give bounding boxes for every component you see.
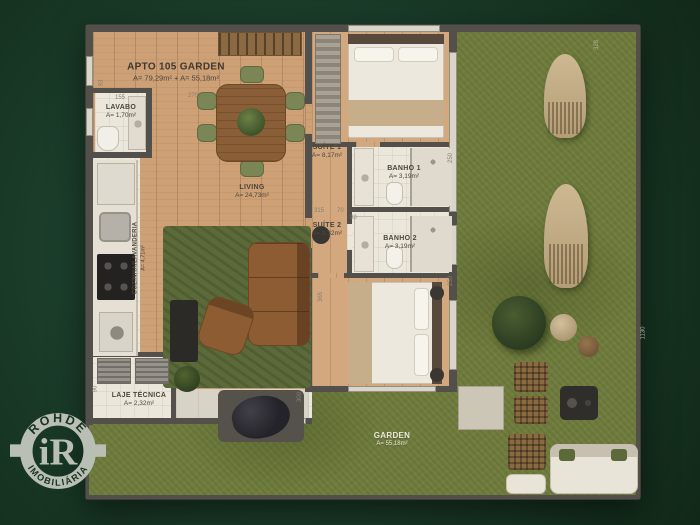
window-suite2-right xyxy=(449,300,457,370)
vanity-banho1 xyxy=(354,148,374,206)
dining-chair xyxy=(285,124,305,142)
room-label-living: LIVING A= 24,73m² xyxy=(235,183,269,201)
garden-pouf xyxy=(550,314,577,341)
dimension-label: 1130 xyxy=(640,327,646,340)
outdoor-coffee-table xyxy=(508,434,546,470)
logo-tab-left xyxy=(10,444,22,456)
kitchen-sink xyxy=(99,212,131,242)
rattan-chair xyxy=(514,362,548,392)
door-gap-suite2-entry xyxy=(318,273,344,278)
room-name: COZINHA/LAVANDERIA xyxy=(133,222,141,295)
door-gap-banho1 xyxy=(356,142,380,147)
dimension-label: 90 xyxy=(350,215,357,221)
hanging-chair-fringe xyxy=(549,244,583,284)
dimension-label: 300 xyxy=(297,392,303,402)
door-gap-banho2 xyxy=(347,224,352,250)
wall-corridor-right xyxy=(347,147,352,278)
dimension-label: 250 xyxy=(448,153,454,163)
room-label-laje: LAJE TÉCNICA A= 2,32m² xyxy=(112,391,167,409)
wall-lavabo-right xyxy=(146,92,152,158)
room-area: A= 9,32m² xyxy=(312,230,342,238)
room-area: A= 1,70m² xyxy=(106,112,136,120)
bed-suite1-pillow xyxy=(354,47,394,62)
room-name: GARDEN xyxy=(374,431,410,441)
lavabo-toilet xyxy=(97,126,119,151)
room-area: A= 3,19m² xyxy=(383,243,417,251)
room-name: LAJE TÉCNICA xyxy=(112,391,167,400)
room-name: BANHO 2 xyxy=(383,234,417,243)
garden-fence-right xyxy=(636,25,640,499)
garden-pouf xyxy=(578,336,599,357)
room-area: A= 3,19m² xyxy=(387,173,421,181)
room-name: SUÍTE 2 xyxy=(312,221,342,230)
dimension-label: 328 xyxy=(594,40,600,50)
room-label-lavabo: LAVABO A= 1,70m² xyxy=(106,103,136,121)
bed-suite1-pillow xyxy=(398,47,438,62)
grill xyxy=(560,386,598,420)
room-label-garden: GARDEN A= 55,18m² xyxy=(374,431,410,449)
sofa xyxy=(248,242,310,346)
dimension-label: 93 xyxy=(98,80,104,87)
logo-monogram: iR xyxy=(39,432,79,474)
ac-unit xyxy=(97,358,131,384)
room-label-banho2: BANHO 2 A= 3,19m² xyxy=(383,234,417,252)
dining-chair xyxy=(197,124,217,142)
dining-chair xyxy=(240,66,264,83)
dining-chair xyxy=(197,92,217,110)
garden-paver xyxy=(458,386,504,430)
room-label-suite1: SUÍTE 1 A= 8,17m² xyxy=(312,143,342,161)
hanging-chair xyxy=(544,54,586,138)
bed-suite2-pillow xyxy=(414,334,429,376)
dimension-label: 315 xyxy=(314,208,324,214)
dimension-label: 70 xyxy=(337,208,344,214)
wall-lavabo-bottom xyxy=(92,152,152,158)
room-name: BANHO 1 xyxy=(387,164,421,173)
outdoor-sofa xyxy=(550,444,638,494)
bed-suite1-throw xyxy=(348,100,444,126)
dimension-label: 90 xyxy=(92,386,98,393)
dimension-label: 270 xyxy=(188,93,198,99)
window-suite1 xyxy=(348,25,440,32)
bed-suite2-pillow xyxy=(414,288,429,330)
dining-chair xyxy=(285,92,305,110)
washer xyxy=(99,312,133,352)
sofa-cushion xyxy=(611,449,627,461)
hanging-chair xyxy=(544,184,588,288)
fridge xyxy=(97,163,135,205)
dimension-label: 155 xyxy=(115,95,125,101)
wall-banho-divider xyxy=(352,207,454,212)
logo-tab-right xyxy=(94,444,106,456)
outdoor-chaise xyxy=(506,474,546,494)
fireplace xyxy=(170,300,198,362)
room-label-suite2: SUÍTE 2 A= 9,32m² xyxy=(312,221,342,239)
room-area: A= 24,73m² xyxy=(235,192,269,200)
garden-fence-bottom xyxy=(86,495,640,499)
bed-suite2-throw xyxy=(348,282,372,384)
toilet-banho1 xyxy=(386,182,403,205)
table-plant xyxy=(237,108,265,136)
door-gap-suite1 xyxy=(305,104,312,134)
suite2-stool xyxy=(430,368,444,382)
room-area: A= 4,71m² xyxy=(140,222,147,295)
rohde-logo: ROHDE IMOBILIÁRIA iR xyxy=(10,398,106,508)
room-name: LIVING xyxy=(235,183,269,192)
plan-title-name: APTO 105 GARDEN xyxy=(127,61,225,74)
bed-suite1-headboard xyxy=(348,34,444,44)
floor-plant xyxy=(174,366,200,392)
garden-bush xyxy=(492,296,546,350)
wine-shelf xyxy=(218,32,302,56)
dining-chair xyxy=(240,160,264,177)
room-label-cozinha: COZINHA/LAVANDERIA A= 4,71m² xyxy=(133,222,148,295)
plan-title: APTO 105 GARDEN A= 79,29m² + A= 55,18m² xyxy=(127,61,225,84)
room-area: A= 8,17m² xyxy=(312,152,342,160)
suite2-stool xyxy=(430,286,444,300)
plan-title-area: A= 79,29m² + A= 55,18m² xyxy=(127,74,225,84)
entry-door-gap xyxy=(86,56,93,86)
wall-lavabo-top xyxy=(92,88,152,93)
rattan-chair xyxy=(514,396,548,424)
room-label-banho1: BANHO 1 A= 3,19m² xyxy=(387,164,421,182)
room-area: A= 2,32m² xyxy=(112,400,167,408)
window-suite2 xyxy=(348,386,436,392)
hanging-chair-fringe xyxy=(548,102,582,134)
floor-plan-image: APTO 105 GARDEN A= 79,29m² + A= 55,18m² … xyxy=(0,0,700,525)
wardrobe-suite1 xyxy=(315,34,341,144)
window-lavabo xyxy=(86,108,93,136)
dimension-label: 365 xyxy=(318,292,324,302)
dimension-label: 250 xyxy=(448,276,454,286)
room-name: LAVABO xyxy=(106,103,136,112)
ac-unit xyxy=(135,358,169,384)
room-area: A= 55,18m² xyxy=(374,441,410,449)
stove xyxy=(97,254,135,300)
sofa-cushion xyxy=(559,449,575,461)
vanity-banho2 xyxy=(354,216,374,272)
room-name: SUÍTE 1 xyxy=(312,143,342,152)
